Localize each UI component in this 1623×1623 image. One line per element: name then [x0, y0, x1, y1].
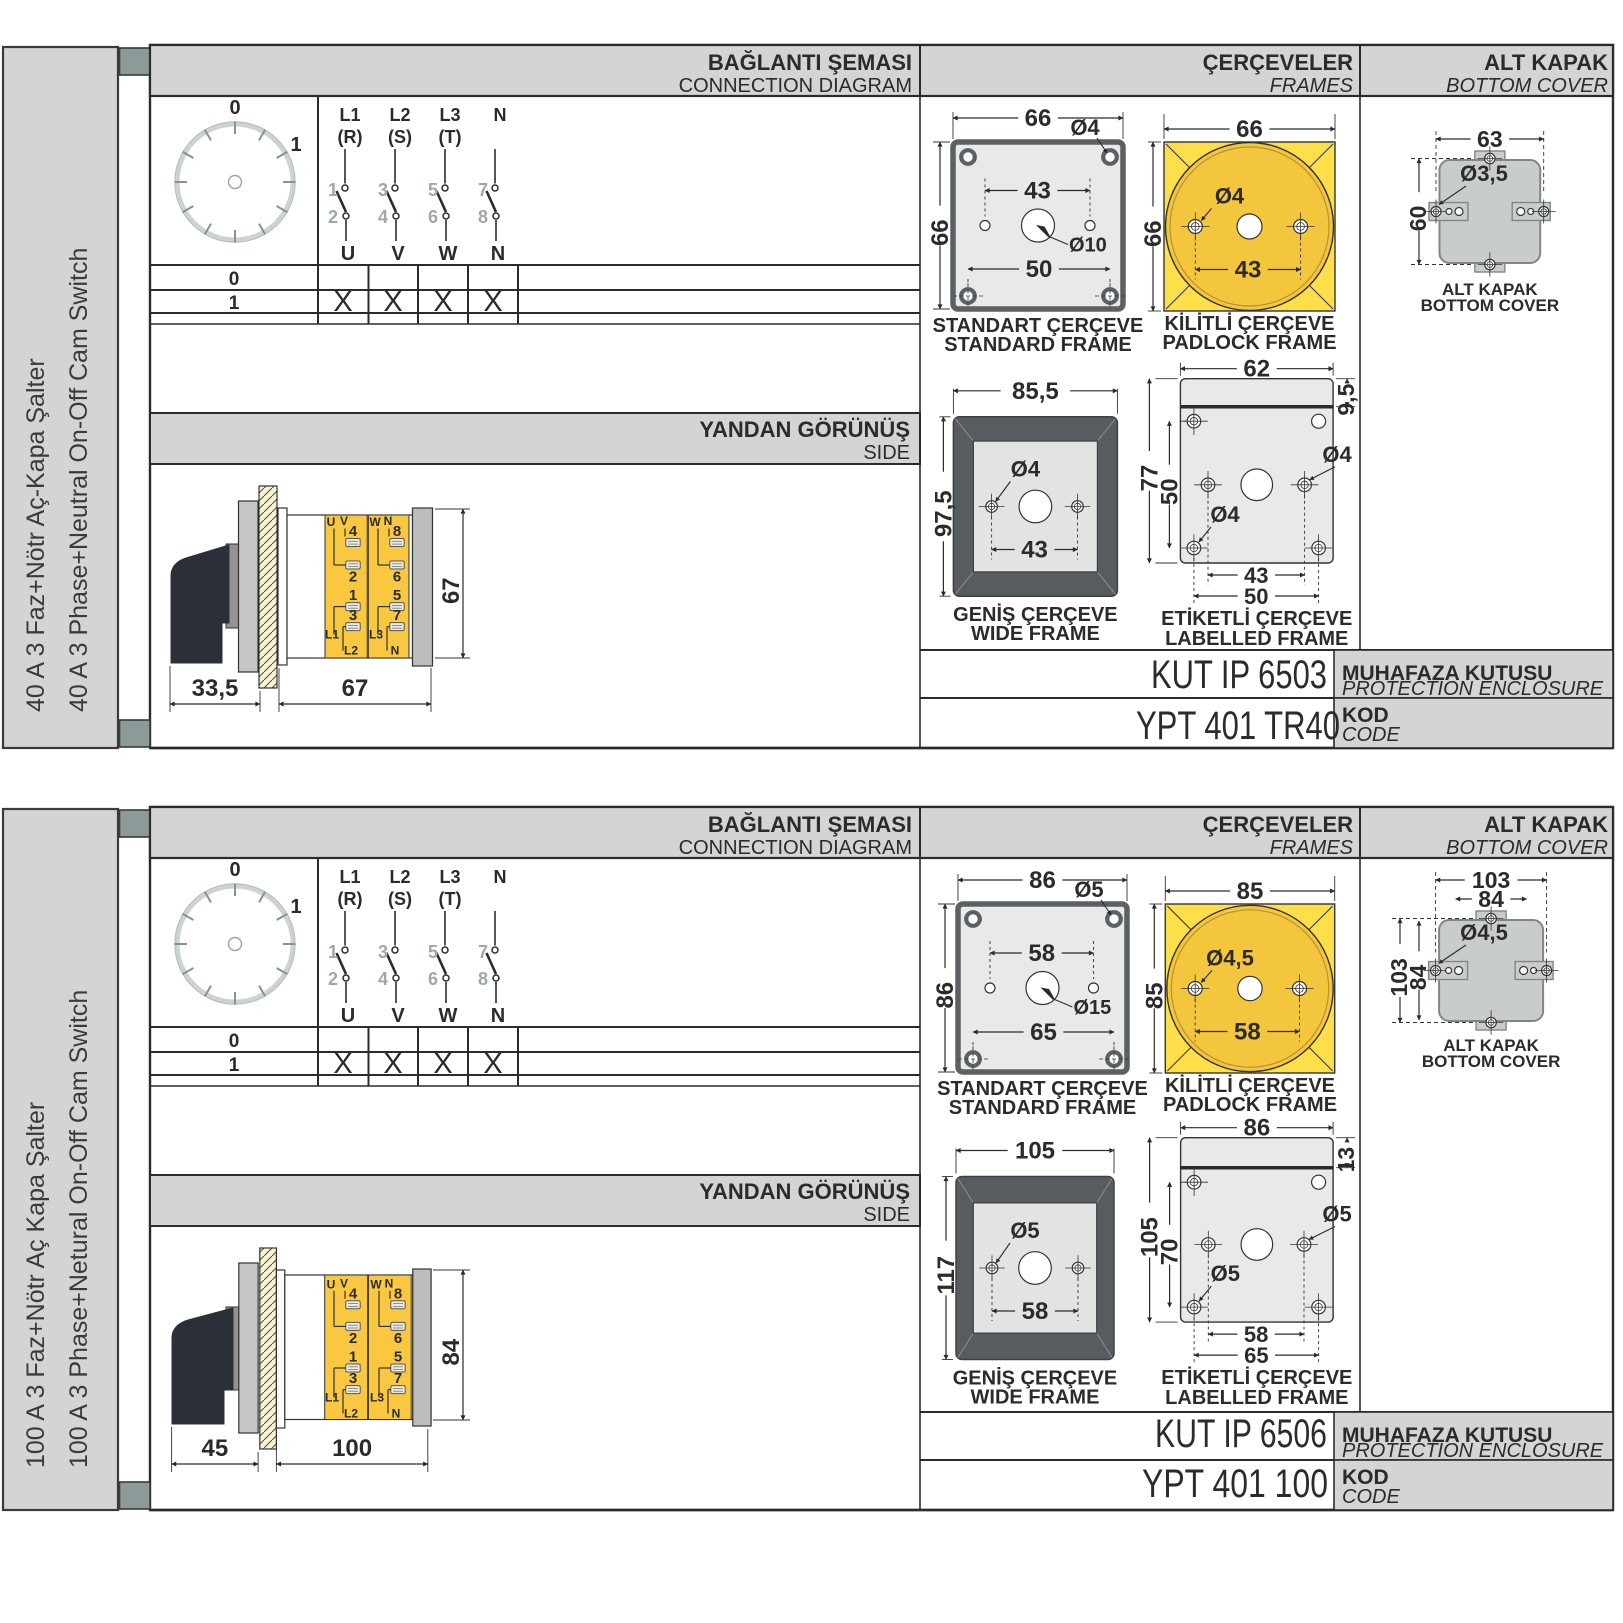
svg-text:X: X	[383, 286, 402, 318]
svg-text:Ø3,5: Ø3,5	[1460, 161, 1508, 186]
svg-text:63: 63	[1477, 126, 1503, 152]
svg-text:CONNECTION DIAGRAM: CONNECTION DIAGRAM	[679, 75, 912, 97]
svg-text:40 A 3 Phase+Neutral On-Off Ca: 40 A 3 Phase+Neutral On-Off Cam Switch	[65, 248, 93, 712]
svg-text:X: X	[333, 286, 352, 318]
svg-text:STANDARD FRAME: STANDARD FRAME	[944, 334, 1131, 356]
svg-text:66: 66	[1140, 220, 1167, 247]
svg-text:YANDAN GÖRÜNÜŞ: YANDAN GÖRÜNÜŞ	[699, 417, 910, 442]
svg-text:Ø4,5: Ø4,5	[1460, 920, 1508, 945]
svg-text:50: 50	[1156, 478, 1183, 505]
svg-text:ÇERÇEVELER: ÇERÇEVELER	[1203, 50, 1353, 75]
svg-text:8: 8	[394, 1285, 402, 1302]
svg-text:6: 6	[428, 207, 438, 227]
svg-text:W: W	[370, 1277, 382, 1291]
svg-text:50: 50	[1244, 584, 1268, 609]
svg-text:PADLOCK FRAME: PADLOCK FRAME	[1162, 332, 1336, 354]
svg-text:0: 0	[229, 97, 240, 119]
svg-text:4: 4	[349, 523, 358, 540]
svg-text:SIDE: SIDE	[863, 442, 910, 464]
svg-text:X: X	[483, 286, 502, 318]
svg-text:7: 7	[478, 180, 488, 200]
svg-text:L3: L3	[370, 1391, 384, 1405]
svg-text:CODE: CODE	[1342, 724, 1400, 746]
svg-text:7: 7	[393, 607, 401, 624]
svg-text:U: U	[341, 243, 355, 265]
svg-text:Ø5: Ø5	[1211, 1261, 1240, 1286]
svg-text:67: 67	[342, 675, 369, 702]
svg-text:70: 70	[1157, 1238, 1184, 1265]
svg-text:WIDE FRAME: WIDE FRAME	[971, 623, 1100, 645]
svg-text:4: 4	[349, 1285, 358, 1302]
svg-text:85,5: 85,5	[1012, 378, 1059, 405]
svg-text:BAĞLANTI ŞEMASI: BAĞLANTI ŞEMASI	[708, 50, 912, 75]
svg-text:KUT IP 6503: KUT IP 6503	[1151, 653, 1327, 697]
svg-text:65: 65	[1244, 1343, 1268, 1368]
svg-text:L1: L1	[325, 1391, 339, 1405]
svg-text:PROTECTION ENCLOSURE: PROTECTION ENCLOSURE	[1342, 678, 1604, 700]
svg-text:BOTTOM COVER: BOTTOM COVER	[1421, 296, 1560, 315]
svg-text:86: 86	[932, 982, 959, 1009]
svg-text:2: 2	[349, 569, 357, 586]
svg-text:66: 66	[1025, 105, 1052, 132]
svg-text:1: 1	[229, 293, 240, 314]
svg-text:43: 43	[1235, 257, 1262, 284]
svg-text:Ø4: Ø4	[1322, 442, 1352, 467]
svg-text:40 A 3 Faz+Nötr Aç-Kapa Şalter: 40 A 3 Faz+Nötr Aç-Kapa Şalter	[22, 358, 50, 712]
svg-text:V: V	[340, 514, 348, 528]
svg-text:PADLOCK FRAME: PADLOCK FRAME	[1163, 1094, 1337, 1116]
svg-text:(S): (S)	[388, 127, 412, 147]
svg-text:Ø5: Ø5	[1010, 1218, 1039, 1243]
svg-text:Ø5: Ø5	[1322, 1202, 1351, 1227]
svg-text:L3: L3	[439, 105, 460, 125]
svg-text:85: 85	[1141, 982, 1168, 1009]
svg-text:43: 43	[1021, 537, 1048, 564]
svg-text:0: 0	[229, 269, 240, 290]
svg-text:W: W	[439, 243, 458, 265]
svg-text:33,5: 33,5	[192, 675, 239, 702]
svg-text:1: 1	[328, 180, 338, 200]
svg-text:Ø15: Ø15	[1074, 997, 1112, 1019]
svg-text:L2: L2	[344, 644, 358, 658]
svg-text:V: V	[340, 1276, 348, 1290]
svg-text:50: 50	[1026, 256, 1053, 283]
svg-text:YPT 401 100: YPT 401 100	[1142, 1462, 1328, 1506]
svg-text:5: 5	[428, 180, 438, 200]
svg-text:BOTTOM COVER: BOTTOM COVER	[1422, 1052, 1561, 1071]
svg-text:100 A 3 Phase+Netural On-Off C: 100 A 3 Phase+Netural On-Off Cam Switch	[65, 990, 93, 1468]
svg-text:N: N	[385, 1276, 394, 1290]
svg-text:45: 45	[201, 1435, 228, 1462]
svg-text:8: 8	[393, 523, 401, 540]
svg-text:8: 8	[478, 207, 488, 227]
svg-text:66: 66	[1236, 116, 1263, 143]
svg-text:LABELLED FRAME: LABELLED FRAME	[1165, 628, 1348, 650]
svg-text:43: 43	[1024, 178, 1051, 205]
svg-text:58: 58	[1028, 940, 1055, 967]
svg-text:7: 7	[394, 1370, 402, 1387]
svg-text:L1: L1	[325, 628, 339, 642]
svg-text:84: 84	[1405, 964, 1431, 990]
svg-text:ALT KAPAK: ALT KAPAK	[1484, 50, 1608, 75]
svg-text:V: V	[391, 243, 405, 265]
svg-text:N: N	[384, 514, 393, 528]
svg-text:N: N	[392, 1407, 401, 1421]
svg-text:58: 58	[1022, 1298, 1049, 1325]
svg-text:105: 105	[1015, 1138, 1055, 1165]
svg-text:U: U	[327, 515, 336, 529]
svg-text:9,5: 9,5	[1333, 383, 1359, 415]
svg-text:117: 117	[933, 1256, 960, 1295]
svg-text:W: W	[369, 515, 381, 529]
svg-text:FRAMES: FRAMES	[1270, 75, 1354, 97]
svg-text:LABELLED FRAME: LABELLED FRAME	[1165, 1387, 1348, 1409]
svg-text:L1: L1	[339, 105, 360, 125]
svg-text:2: 2	[349, 1330, 357, 1347]
svg-text:(T): (T)	[439, 127, 462, 147]
svg-text:Ø4: Ø4	[1210, 502, 1240, 527]
svg-text:5: 5	[393, 587, 401, 604]
svg-text:2: 2	[328, 207, 338, 227]
svg-text:97,5: 97,5	[930, 490, 957, 537]
svg-text:1: 1	[349, 1349, 357, 1366]
svg-text:ETİKETLİ ÇERÇEVE: ETİKETLİ ÇERÇEVE	[1161, 607, 1352, 630]
svg-text:86: 86	[1029, 867, 1056, 894]
svg-text:13: 13	[1333, 1147, 1359, 1173]
svg-text:6: 6	[394, 1330, 402, 1347]
svg-text:ETİKETLİ ÇERÇEVE: ETİKETLİ ÇERÇEVE	[1161, 1366, 1352, 1389]
svg-text:84: 84	[1478, 886, 1504, 912]
svg-text:62: 62	[1243, 356, 1270, 383]
svg-text:BOTTOM COVER: BOTTOM COVER	[1446, 75, 1608, 97]
svg-text:X: X	[433, 286, 452, 318]
svg-text:(R): (R)	[338, 127, 363, 147]
svg-text:Ø4: Ø4	[1215, 184, 1245, 209]
svg-text:N: N	[491, 243, 505, 265]
svg-text:4: 4	[378, 207, 388, 227]
svg-text:58: 58	[1234, 1019, 1261, 1046]
svg-text:Ø10: Ø10	[1069, 235, 1107, 257]
svg-text:Ø4,5: Ø4,5	[1206, 946, 1254, 971]
svg-text:85: 85	[1237, 878, 1264, 905]
svg-text:65: 65	[1030, 1019, 1057, 1046]
svg-text:5: 5	[394, 1349, 402, 1366]
svg-text:YPT 401 TR40: YPT 401 TR40	[1136, 704, 1340, 748]
svg-text:Ø4: Ø4	[1011, 457, 1041, 482]
svg-text:3: 3	[349, 1370, 357, 1387]
svg-text:Ø4: Ø4	[1070, 115, 1100, 140]
svg-text:67: 67	[438, 577, 465, 604]
svg-text:L3: L3	[369, 628, 383, 642]
svg-text:1: 1	[290, 134, 301, 156]
svg-text:66: 66	[927, 219, 954, 246]
svg-text:86: 86	[1243, 1115, 1270, 1142]
svg-text:60: 60	[1405, 206, 1431, 232]
svg-text:84: 84	[438, 1338, 465, 1365]
svg-text:U: U	[327, 1277, 336, 1291]
svg-text:3: 3	[378, 180, 388, 200]
svg-text:100 A 3 Faz+Nötr Aç Kapa Şalte: 100 A 3 Faz+Nötr Aç Kapa Şalter	[22, 1102, 50, 1468]
svg-text:L2: L2	[389, 105, 410, 125]
svg-text:3: 3	[349, 607, 357, 624]
svg-text:L2: L2	[344, 1407, 358, 1421]
svg-text:Ø5: Ø5	[1074, 877, 1103, 902]
svg-text:100: 100	[332, 1435, 372, 1462]
svg-text:6: 6	[393, 569, 401, 586]
svg-text:N: N	[494, 105, 507, 125]
svg-text:WIDE FRAME: WIDE FRAME	[971, 1387, 1100, 1409]
svg-text:N: N	[391, 644, 400, 658]
svg-text:STANDARD FRAME: STANDARD FRAME	[949, 1097, 1136, 1119]
svg-text:KUT IP 6506: KUT IP 6506	[1155, 1412, 1327, 1456]
svg-text:1: 1	[349, 587, 357, 604]
